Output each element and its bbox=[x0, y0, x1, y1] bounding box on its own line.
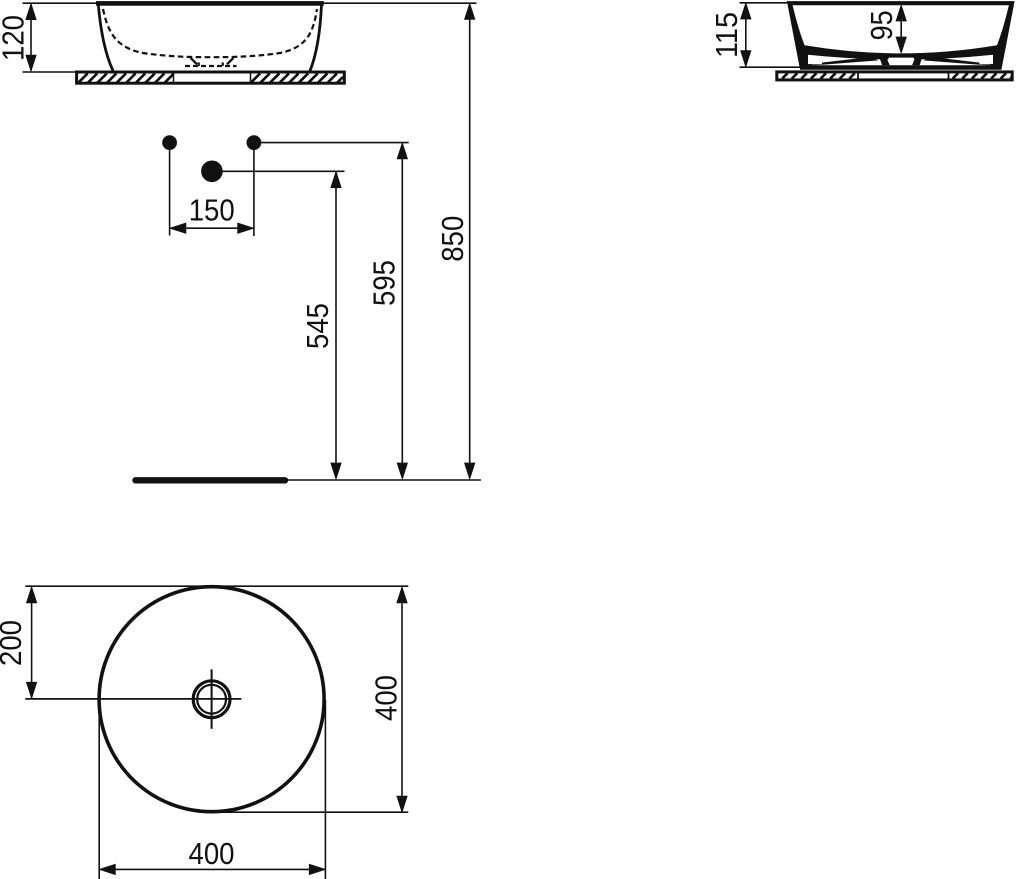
svg-text:95: 95 bbox=[864, 10, 899, 40]
svg-text:200: 200 bbox=[0, 620, 28, 666]
svg-text:400: 400 bbox=[369, 675, 404, 721]
svg-text:150: 150 bbox=[189, 193, 235, 228]
svg-text:850: 850 bbox=[435, 216, 470, 262]
svg-text:115: 115 bbox=[709, 12, 744, 58]
svg-text:545: 545 bbox=[300, 303, 335, 349]
svg-text:120: 120 bbox=[0, 15, 30, 61]
svg-text:400: 400 bbox=[189, 836, 235, 871]
svg-text:595: 595 bbox=[367, 260, 402, 306]
